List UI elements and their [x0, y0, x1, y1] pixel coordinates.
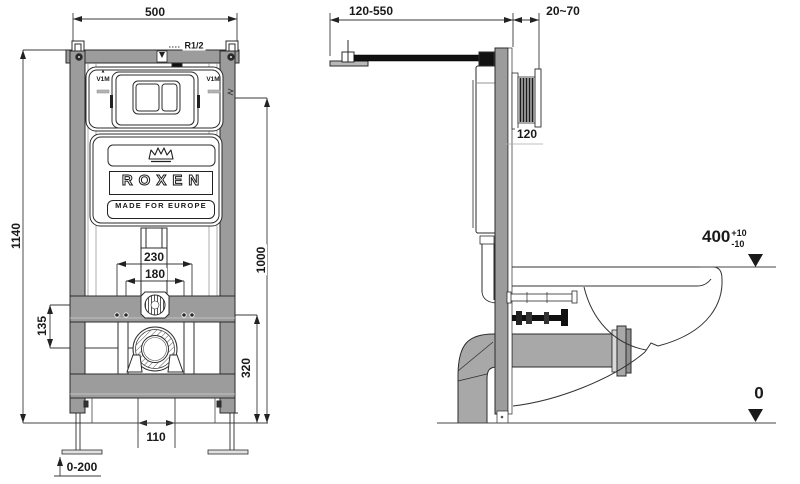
lower-crossbar — [70, 374, 235, 398]
plate-marking-left: V1M — [96, 77, 109, 84]
dim-seat-height: 400 — [702, 228, 730, 245]
water-supply-label: R1/2 — [182, 42, 205, 51]
plate-marking-right: V1M — [206, 77, 219, 84]
waste-pipe-front — [127, 327, 183, 372]
strut-right — [184, 322, 194, 374]
dim-fixing-height: 320 — [240, 356, 252, 380]
cistern — [473, 66, 497, 303]
legs-and-feet — [62, 398, 248, 454]
strut-left — [118, 322, 128, 374]
dim-plate-center-height: 1000 — [255, 245, 267, 276]
floor-level-label: 0 — [752, 385, 765, 402]
dim-leg-adjustment: 0-200 — [65, 461, 100, 473]
crown-icon — [145, 146, 177, 169]
dim-width-top: 500 — [143, 6, 167, 18]
side-rail — [495, 48, 512, 423]
brand-logo: ROXEN — [109, 171, 213, 195]
dim-inlet-offset: 135 — [36, 314, 48, 338]
dim-plate-depth: 20~70 — [544, 5, 582, 17]
dim-seat-height-group: 400 +10 -10 — [702, 228, 747, 251]
seat-tolerance-minus: -10 — [731, 239, 746, 250]
dim-waste-outlet: 110 — [144, 431, 167, 443]
plate-marking-icon: ▴ — [102, 70, 105, 75]
wall-bracket — [330, 40, 494, 66]
waste-elbow — [458, 326, 631, 423]
dim-fixing-outer: 230 — [142, 251, 166, 263]
drawing-linework — [0, 0, 800, 484]
upper-crossbar — [70, 292, 235, 322]
seat-tolerance-plus: +10 — [731, 228, 746, 239]
mounting-studs — [507, 291, 577, 326]
technical-drawing-page: 500 1140 R1/2 ▴ V1M V1M ROXEN MADE FOR E… — [0, 0, 800, 484]
side-view — [330, 13, 776, 423]
dim-wall-bracket-range: 120-550 — [347, 5, 395, 17]
dim-frame-depth: 120 — [515, 128, 539, 140]
brand-tagline: MADE FOR EUROPE — [107, 200, 215, 219]
dim-fixing-inner: 180 — [143, 268, 167, 280]
front-view — [23, 13, 268, 476]
dim-height-overall: 1140 — [10, 221, 22, 251]
